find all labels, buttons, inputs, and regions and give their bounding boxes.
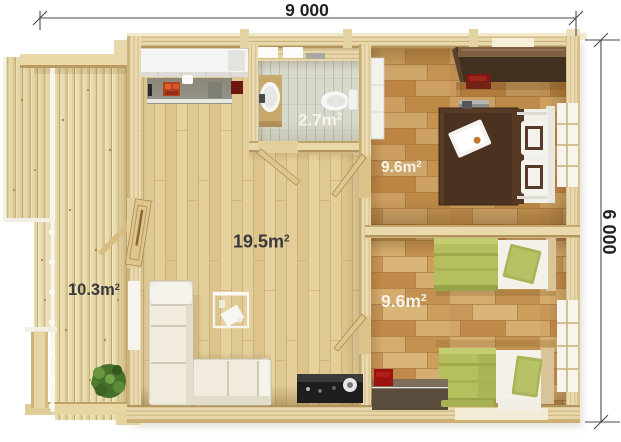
svg-text:9.6m2: 9.6m2 xyxy=(381,159,422,176)
svg-text:2.7m2: 2.7m2 xyxy=(298,111,343,130)
svg-text:9 000: 9 000 xyxy=(285,0,329,20)
svg-text:10.3m2: 10.3m2 xyxy=(68,281,120,299)
svg-text:9.6m2: 9.6m2 xyxy=(381,291,427,311)
svg-text:6 000: 6 000 xyxy=(599,209,619,254)
svg-text:19.5m2: 19.5m2 xyxy=(233,232,290,252)
